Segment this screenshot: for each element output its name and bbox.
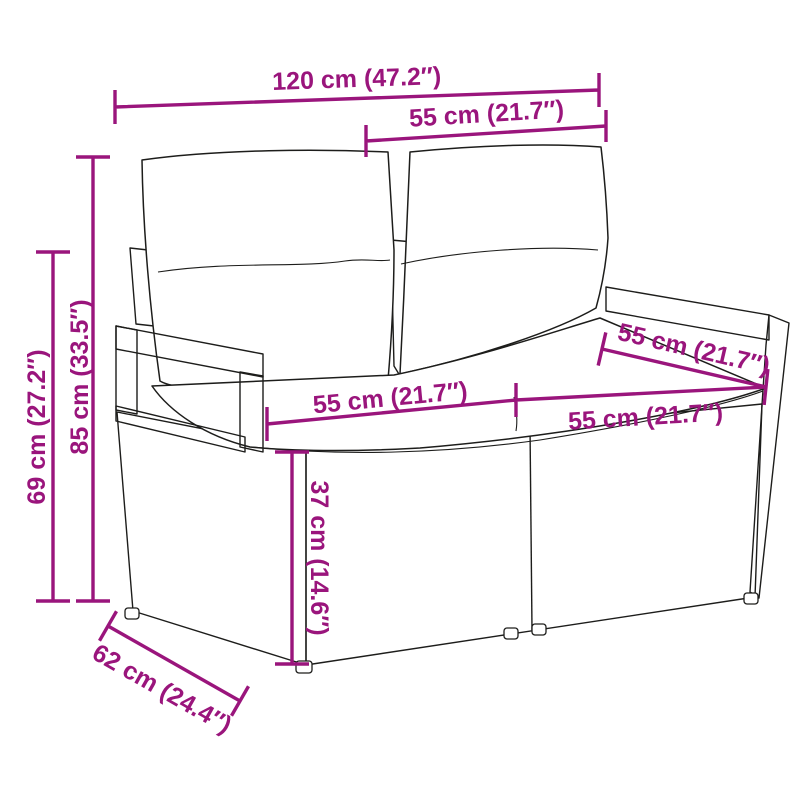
- base-side-panel: [117, 412, 306, 665]
- dimension-seat-height: 37 cm (14.6″): [275, 452, 333, 664]
- sofa-feet: [125, 593, 758, 673]
- dimension-total-height-label: 85 cm (33.5″): [66, 299, 94, 454]
- dimension-armrest-height: 69 cm (27.2″): [23, 252, 70, 601]
- foot: [504, 628, 518, 639]
- dimension-total-width-label: 120 cm (47.2″): [272, 62, 442, 96]
- sofa-dimension-diagram: 120 cm (47.2″) 55 cm (21.7″) 55 cm (21.7…: [0, 0, 800, 800]
- foot: [744, 593, 758, 604]
- foot: [125, 608, 139, 619]
- dimension-backrest-width-label: 55 cm (21.7″): [408, 95, 565, 132]
- dimension-seat-height-label: 37 cm (14.6″): [305, 480, 333, 635]
- dimension-base-depth-label: 62 cm (24.4″): [88, 639, 237, 740]
- product-diagram-page: 120 cm (47.2″) 55 cm (21.7″) 55 cm (21.7…: [0, 0, 800, 800]
- dimension-total-height: 85 cm (33.5″): [66, 157, 110, 601]
- base-module-seam: [530, 426, 532, 630]
- dimension-armrest-height-label: 69 cm (27.2″): [23, 349, 51, 504]
- left-arm-front-stile: [116, 326, 137, 414]
- dimension-base-depth: 62 cm (24.4″): [88, 611, 249, 739]
- foot: [532, 624, 546, 635]
